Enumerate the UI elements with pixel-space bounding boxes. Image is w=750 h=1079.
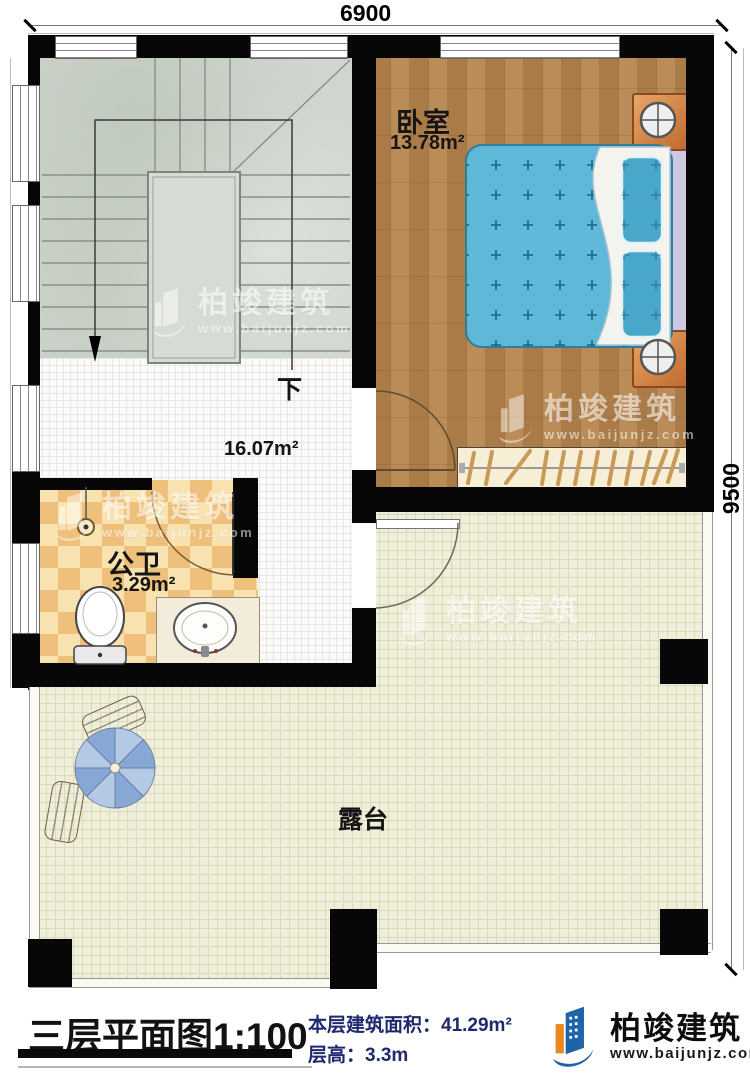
bedroom-door-opening	[352, 389, 376, 469]
brand-logo-icon	[544, 1004, 602, 1068]
terrace-column	[330, 909, 377, 989]
wall-hall-bottom	[28, 663, 376, 687]
window-bedroom	[440, 36, 620, 59]
floor-area-stat: 本层建筑面积：41.29m²	[308, 1010, 512, 1037]
window-left-1	[12, 85, 40, 182]
railing-right	[702, 512, 713, 950]
dimension-width-label: 6900	[340, 0, 391, 27]
railing-bottom-left	[29, 978, 377, 988]
floor-plan-canvas: 6900 9500	[0, 0, 750, 1079]
window-top-1	[55, 36, 137, 59]
wall-bathroom-top	[40, 478, 152, 490]
stair-down-label: 下	[277, 370, 302, 406]
window-top-2	[250, 36, 348, 59]
window-left-2	[12, 205, 40, 302]
floor-area-label: 本层建筑面积：	[308, 1015, 441, 1036]
title-underline-thin	[18, 1066, 312, 1068]
floor-height-stat: 层高：3.3m	[308, 1040, 408, 1067]
title-underline	[18, 1049, 292, 1058]
hall-area: 16.07m²	[224, 438, 299, 461]
floor-area-value: 41.29m²	[441, 1015, 512, 1036]
sill-line-left	[10, 58, 11, 688]
bathroom-counter	[156, 597, 260, 665]
nightstand-top	[632, 93, 688, 151]
wall-bathroom-right	[233, 478, 258, 578]
terrace-label: 露台	[338, 800, 388, 836]
wall-left-pier	[12, 470, 38, 543]
sill-line-top	[28, 33, 714, 34]
terrace-column	[28, 939, 72, 987]
terrace-door-leaf	[376, 519, 460, 529]
bathroom-area: 3.29m²	[112, 574, 175, 597]
window-left-3	[12, 385, 40, 472]
wardrobe	[457, 447, 687, 491]
window-left-4	[12, 543, 40, 634]
floor-height-label: 层高：	[308, 1045, 365, 1066]
bedside-runner	[668, 150, 687, 332]
wall-divider	[352, 608, 376, 667]
nightstand-bottom	[632, 330, 688, 388]
brand-logo: 柏竣建筑 www.baijunjz.com	[544, 1004, 750, 1068]
terrace-door-opening	[352, 524, 376, 607]
stairwell-floor	[28, 35, 376, 365]
floor-height-value: 3.3m	[365, 1045, 408, 1066]
wall-bedroom-bottom	[352, 487, 714, 512]
brand-website: www.baijunjz.com	[610, 1046, 750, 1061]
terrace-column	[660, 909, 708, 955]
dimension-height-label: 9500	[718, 463, 745, 514]
terrace-column	[660, 639, 708, 684]
wall-right	[686, 35, 714, 512]
bedroom-area: 13.78m²	[390, 132, 465, 155]
brand-name: 柏竣建筑	[610, 1011, 750, 1047]
wall-divider	[352, 35, 376, 388]
